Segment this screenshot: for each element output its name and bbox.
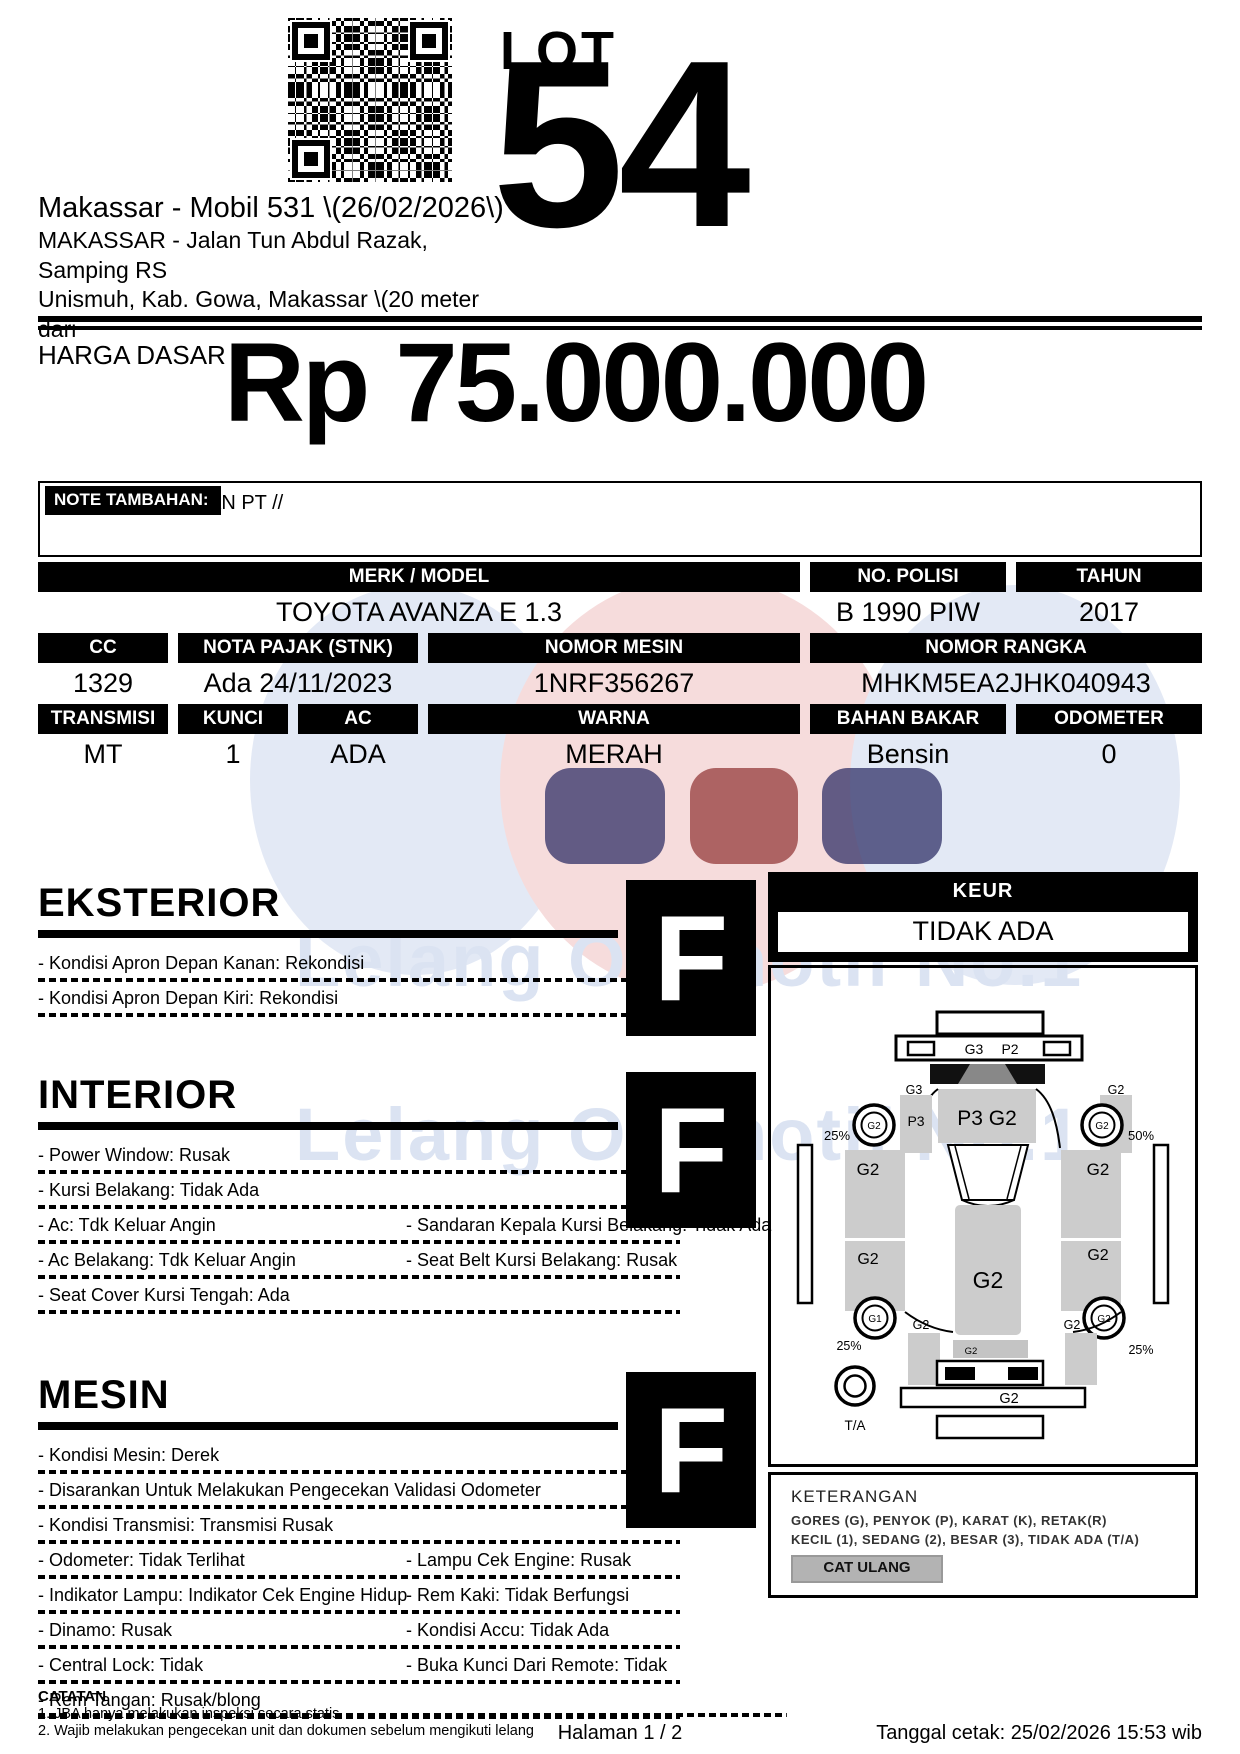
keur-value: TIDAK ADA [776,910,1190,954]
spec-value-warna: MERAH [428,734,800,775]
diagram-label-front-right-wheel: G2 [1095,1121,1109,1132]
rear-right-quarter-shape [1065,1333,1097,1385]
qr-finder-top-left [290,20,332,62]
diagram-label-rear-left-wheel: G1 [868,1314,882,1325]
diagram-label-left-fender-top: G3 [906,1083,923,1097]
diagram-label-spare-tire: T/A [844,1418,865,1433]
vehicle-spec-table: MERK / MODEL NO. POLISI TAHUN TOYOTA AVA… [38,562,1202,775]
qr-finder-bottom-left [290,138,332,180]
inspection-item: - Central Lock: Tidak [38,1655,406,1676]
cat-ulang-badge: CAT ULANG [791,1555,943,1583]
grade-letter: F [654,897,729,1019]
rear-left-quarter-shape [908,1333,940,1385]
grade-letter: F [654,1389,729,1511]
spec-header: MERK / MODEL [38,562,800,592]
grade-box-interior: F [626,1072,756,1228]
fender-line-right [1036,1089,1060,1148]
inspection-item: - Odometer: Tidak Terlihat [38,1550,406,1571]
diagram-label-front-bar-left: G3 [965,1041,984,1057]
diagram-label-front-left-pct: 25% [824,1128,850,1143]
spec-header: NOTA PAJAK (STNK) [178,633,418,663]
spec-value-odometer: 0 [1016,734,1202,775]
inspection-item [406,1285,680,1306]
spec-value-cc: 1329 [38,663,168,704]
spec-header: KUNCI [178,704,288,734]
catatan-label: CATATAN [38,1688,818,1705]
spec-value-transmisi: MT [38,734,168,775]
diagram-label-right-front-door: G2 [1087,1160,1110,1179]
diagram-label-right-rear-panel: G2 [1087,1247,1108,1264]
diagram-label-rear-right-side: G2 [1064,1318,1081,1332]
spec-value-nota-pajak: Ada 24/11/2023 [178,663,418,704]
footer-note-1: 1. JBA hanya melakukan inspeksi secara s… [38,1706,818,1722]
diagram-label-rear-window: G2 [965,1346,978,1357]
spec-row-1: MERK / MODEL NO. POLISI TAHUN TOYOTA AVA… [38,562,1202,633]
inspection-item: - Kursi Belakang: Tidak Ada [38,1174,680,1209]
diagram-label-left-rear-panel: G2 [857,1251,878,1268]
spec-header: BAHAN BAKAR [810,704,1006,734]
keterangan-panel: KETERANGAN GORES (G), PENYOK (P), KARAT … [768,1472,1198,1598]
inspection-item: - Power Window: Rusak [38,1139,680,1174]
qr-finder-top-right [408,20,450,62]
spec-value-tahun: 2017 [1016,592,1202,633]
inspection-item-pair: - Odometer: Tidak Terlihat - Lampu Cek E… [38,1544,680,1579]
section-title-interior: INTERIOR [38,1072,680,1118]
grade-box-mesin: F [626,1372,756,1528]
section-title-eksterior: EKSTERIOR [38,880,680,926]
diagram-label-rear-bumper: G2 [999,1391,1018,1407]
inspection-item: - Kondisi Mesin: Derek [38,1439,680,1474]
car-top-view: G3 P2 P3 G2 G3 P3 G2 G2 G2 25% 50% [771,968,1195,1464]
diagram-label-front-bar-right: P2 [1001,1041,1018,1057]
inspection-item: - Disarankan Untuk Melakukan Pengecekan … [38,1474,680,1509]
base-price-value: Rp 75.000.000 [0,318,1157,447]
inspection-item-pair: - Indikator Lampu: Indikator Cek Engine … [38,1579,680,1614]
spec-value-kunci: 1 [178,734,288,775]
front-bumper-shape [937,1012,1043,1034]
keur-label: KEUR [768,872,1198,910]
section-title-mesin: MESIN [38,1372,680,1418]
section-mesin: MESIN - Kondisi Mesin: Derek - Disaranka… [38,1372,680,1719]
windshield-shape [948,1145,1028,1200]
diagram-label-hood: P3 G2 [957,1107,1017,1130]
auction-address-line1: MAKASSAR - Jalan Tun Abdul Razak, Sampin… [38,226,518,285]
spec-value-merk-model: TOYOTA AVANZA E 1.3 [38,592,800,633]
spec-header: WARNA [428,704,800,734]
lot-number: 54 [492,44,745,246]
watermark-logo-stroke-1 [545,768,665,864]
inspection-item: - Kondisi Accu: Tidak Ada [406,1620,680,1641]
rear-bumper-shape [901,1388,1085,1407]
diagram-label-right-fender-top: G2 [1108,1083,1125,1097]
inspection-item-pair: - Ac: Tdk Keluar Angin - Sandaran Kepala… [38,1209,680,1244]
note-box: NOTE TAMBAHAN: AN PT // [38,481,1202,557]
spec-value-no-polisi: B 1990 PIW [810,592,1006,633]
inspection-item-pair: - Ac Belakang: Tdk Keluar Angin - Seat B… [38,1244,680,1279]
grade-letter: F [654,1089,729,1211]
spec-header: CC [38,633,168,663]
tail-light-left-shape [945,1367,975,1380]
section-interior: INTERIOR - Power Window: Rusak - Kursi B… [38,1072,680,1314]
right-side-rail-shape [1154,1145,1168,1303]
grade-box-eksterior: F [626,880,756,1036]
inspection-item: - Ac Belakang: Tdk Keluar Angin [38,1250,406,1271]
inspection-item: - Kondisi Transmisi: Transmisi Rusak [38,1509,680,1544]
spec-row-3: TRANSMISI KUNCI AC WARNA BAHAN BAKAR ODO… [38,704,1202,775]
diagram-label-roof: G2 [973,1267,1004,1293]
spec-header: NOMOR MESIN [428,633,800,663]
spec-header: NOMOR RANGKA [810,633,1202,663]
inspection-item: - Seat Belt Kursi Belakang: Rusak [406,1250,680,1271]
keterangan-line1: GORES (G), PENYOK (P), KARAT (K), RETAK(… [791,1513,1195,1528]
diagram-label-rear-left-pct: 25% [836,1339,861,1353]
inspection-item: - Ac: Tdk Keluar Angin [38,1215,406,1236]
inspection-item: - Seat Cover Kursi Tengah: Ada [38,1285,406,1306]
diagram-label-front-right-pct: 50% [1128,1128,1154,1143]
watermark-logo-stroke-2 [690,768,798,864]
qr-code [288,18,452,182]
section-eksterior: EKSTERIOR - Kondisi Apron Depan Kanan: R… [38,880,680,1017]
diagram-label-left-fender: P3 [907,1113,924,1129]
spec-header: ODOMETER [1016,704,1202,734]
inspection-item: - Lampu Cek Engine: Rusak [406,1550,680,1571]
headlight-left-shape [908,1042,934,1055]
tail-light-right-shape [1008,1367,1038,1380]
inspection-item: - Dinamo: Rusak [38,1620,406,1641]
left-side-rail-shape [798,1145,812,1303]
spec-row-2: CC NOTA PAJAK (STNK) NOMOR MESIN NOMOR R… [38,633,1202,704]
inspection-item: - Buka Kunci Dari Remote: Tidak [406,1655,680,1676]
keterangan-line2: KECIL (1), SEDANG (2), BESAR (3), TIDAK … [791,1532,1195,1547]
spec-value-bahan-bakar: Bensin [810,734,1006,775]
spec-header: TRANSMISI [38,704,168,734]
spec-header: AC [298,704,418,734]
damage-diagram: G3 P2 P3 G2 G3 P3 G2 G2 G2 25% 50% [768,965,1198,1467]
watermark-logo-stroke-3 [822,768,942,864]
inspection-item: - Kondisi Apron Depan Kiri: Rekondisi [38,982,680,1017]
spec-value-ac: ADA [298,734,418,775]
section-underline [38,930,618,938]
trunk-shape [937,1416,1043,1438]
spec-header: TAHUN [1016,562,1202,592]
inspection-item-pair: - Central Lock: Tidak - Buka Kunci Dari … [38,1649,680,1684]
section-underline [38,1422,618,1430]
spare-tire-inner [845,1376,866,1397]
diagram-label-rear-right-pct: 25% [1128,1343,1153,1357]
inspection-item: - Indikator Lampu: Indikator Cek Engine … [38,1585,406,1606]
print-date: Tanggal cetak: 25/02/2026 15:53 wib [876,1722,1202,1745]
section-underline [38,1122,618,1130]
diagram-label-front-left-wheel: G2 [867,1121,881,1132]
headlight-right-shape [1044,1042,1070,1055]
inspection-item: - Kondisi Apron Depan Kanan: Rekondisi [38,947,680,982]
spec-value-nomor-mesin: 1NRF356267 [428,663,800,704]
note-label: NOTE TAMBAHAN: [45,486,221,515]
spec-value-nomor-rangka: MHKM5EA2JHK040943 [810,663,1202,704]
spec-header: NO. POLISI [810,562,1006,592]
diagram-label-left-front-door: G2 [857,1160,880,1179]
inspection-item: - Rem Kaki: Tidak Berfungsi [406,1585,680,1606]
inspection-item-pair: - Dinamo: Rusak - Kondisi Accu: Tidak Ad… [38,1614,680,1649]
inspection-item-pair: - Seat Cover Kursi Tengah: Ada [38,1279,680,1314]
keur-panel: KEUR TIDAK ADA [768,872,1198,962]
auction-title: Makassar - Mobil 531 \(26/02/2026\) [38,190,518,226]
keterangan-title: KETERANGAN [791,1487,1195,1507]
auction-lot-sheet: Lelang Otomotif No.1 Lelang Otomotif No.… [0,0,1240,1754]
